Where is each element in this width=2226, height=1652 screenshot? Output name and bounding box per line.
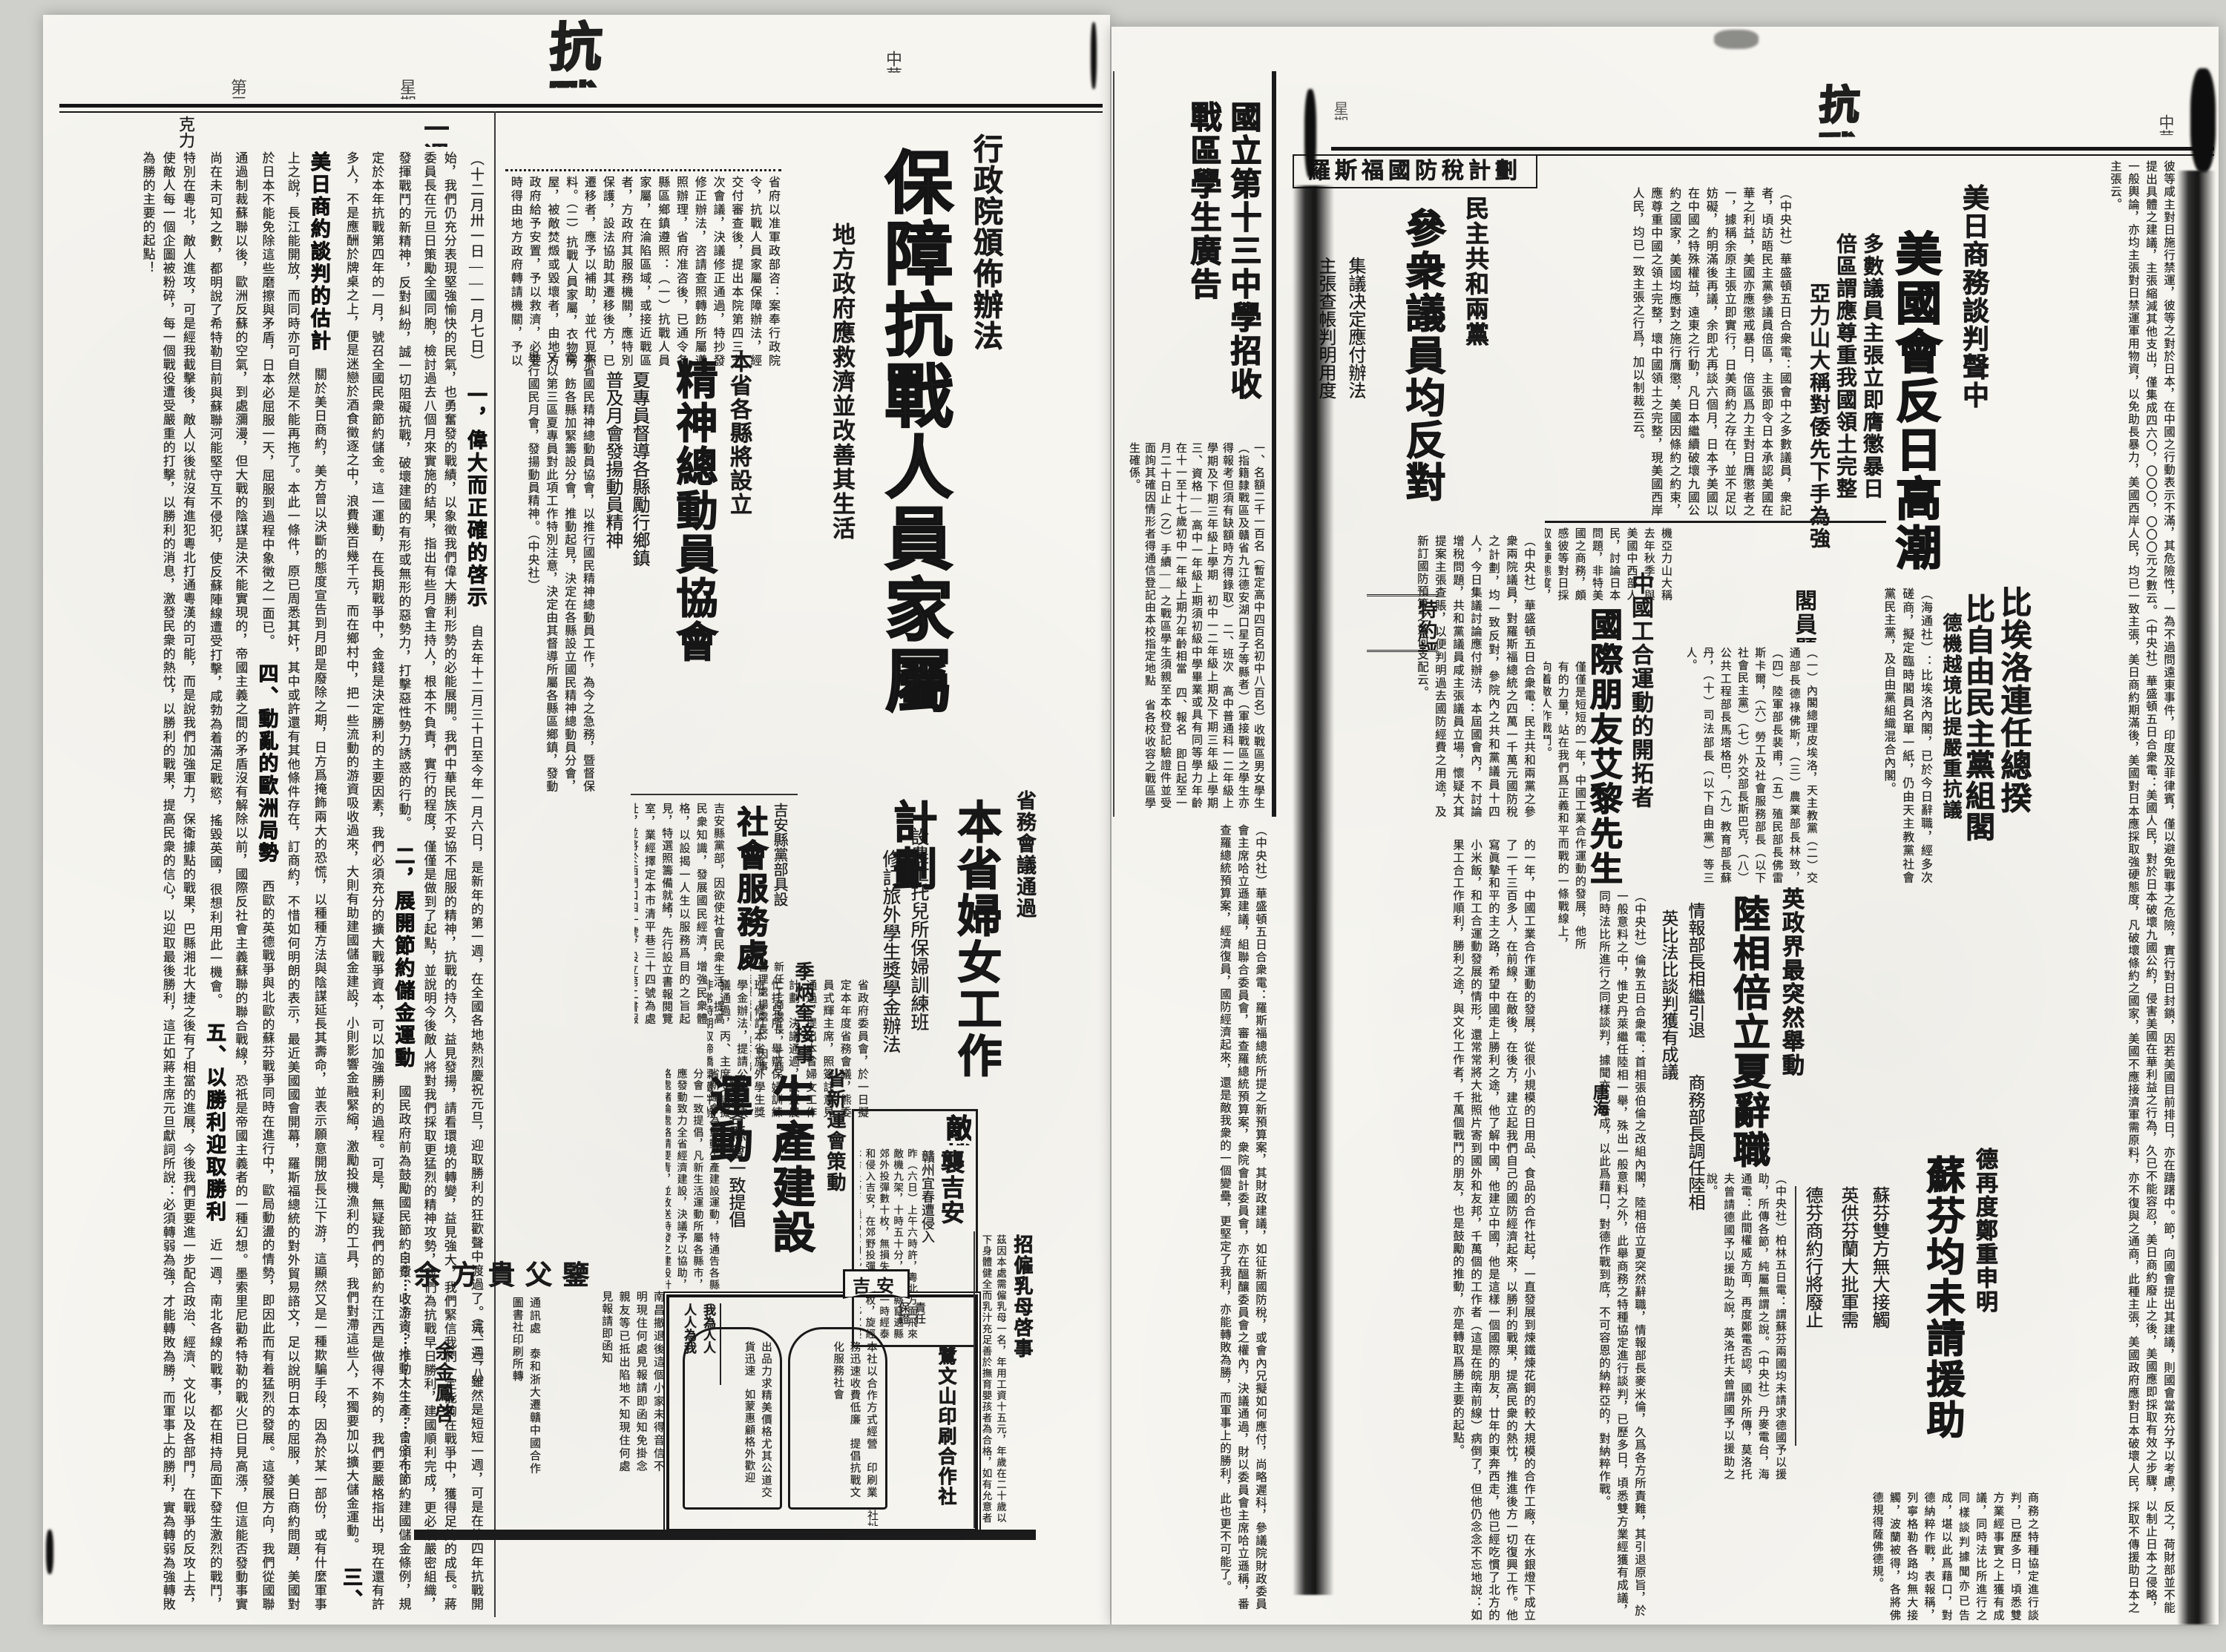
- fold-streak: [1293, 185, 1334, 1595]
- weekday-left: 星期日: [331, 79, 420, 99]
- production-drive-article: 省新運會策動 生產建設運動 通告各縣會一致提倡 省新運會為策動生產建設運動，特通…: [664, 1062, 852, 1296]
- review-sec1-head: 一，偉大而正確的啓示: [464, 385, 487, 609]
- fp-body: 省府以准軍政部咨：案奉行政院令，抗戰人員家屬保障辦法，經交付審查後，提出本院第四…: [505, 169, 781, 367]
- edition-label: 第三版: [154, 79, 251, 99]
- coop-label-guarantee: 保證: [896, 1302, 911, 1346]
- right-page: 國立第十三中學招收 戰區學生廣告 一、名額二千一百名（暫定高中四百名初中八百名）…: [1112, 27, 2219, 1625]
- fp-subhead: 地方政府應救濟並改善其生活: [825, 223, 858, 653]
- family-notice-code: （元、二一八）: [470, 1312, 485, 1460]
- essay-kicker: 中國工合運動的開拓者: [1623, 572, 1656, 817]
- family-notice-body: 南昌撤退後這個小家未得音信不明現住何處見報請即函知免掛念 親友等已抵出陷地不知現…: [548, 1291, 666, 1472]
- coop-banner: 吉安: [843, 1269, 910, 1299]
- weekly-review-title: 一週時事述評: [205, 116, 450, 147]
- prod-kicker: 省新運會策動: [821, 1068, 849, 1217]
- newspaper-scan: 抗戰日報 第三版 星期日 中華民國二十九年一月七日 一週時事述評 克力 （十二月…: [0, 0, 2226, 1652]
- spirit-body: 本省國民精神總動員協會，以推行國民精神總動員工作，為今之急務，暨督保電，飭各縣加…: [518, 352, 596, 793]
- family-notice-ad: 余方貴父鑒 南昌撤退後這個小家未得音信不明現住何處見報請即函知免掛念 親友等已抵…: [404, 1252, 672, 1482]
- essay-bodyA: 僅僅是短短的一年，中國工業合作運動的發展，他所有的力量，站在我們爲正義和平而戰的…: [1543, 661, 1588, 950]
- us-headline: 美國會反日高潮: [1880, 230, 1947, 582]
- belgium-roster: （一）內閣總理皮埃洛，天主教黨（二）交通部長德祿佛斯，（三）農業部長林致，（四）…: [1687, 647, 1819, 884]
- coop-arch-right: 本社以合作方式經營 印刷業務迅速收費低廉 提倡抗戰文化服務社會: [788, 1327, 887, 1510]
- tax-kicker: 民主共和兩黨: [1459, 196, 1493, 381]
- essay-tag: 特約評稿: [1367, 594, 1438, 652]
- ailey-essay: 特約評稿 中國工合運動的開拓者 國際朋友艾黎先生 僅僅是短短的一年，中國工業合作…: [1364, 565, 1683, 1629]
- ink-blot-2: [1304, 89, 1316, 178]
- weekday-right: 星期日: [1284, 101, 1350, 120]
- belgium-roster-title: 閣員題名: [1735, 589, 1816, 642]
- dateline-left: 中華民國二十九年一月七日: [607, 50, 904, 73]
- coop-address: 社址蘇統領八號: [738, 1510, 879, 1526]
- prod-subhead: 通告各縣會一致提倡: [723, 1074, 748, 1267]
- us-sub3: 亞力山大稱對倭先下手為強: [1803, 283, 1833, 602]
- belgium-body: （海通社）：比埃洛內閣，已於今日辭職，經多次磋商，擬定臨時閣員名單一紙，仍由天主…: [1824, 588, 1934, 884]
- school-ad: 國立第十三中學招收 戰區學生廣告 一、名額二千一百名（暫定高中四百名初中八百名）…: [1113, 71, 1276, 817]
- jibingkui-brief: 季炳奎接事 新任工商處長，工商管理處楊處長，因事繁無暇兼顧，經省務會議決定，派季…: [748, 958, 818, 1077]
- review-range: （十二月卅一日——一月七日）: [468, 151, 484, 369]
- right-strip-columns: 彼等咸主對日施行禁運，彼等之對於日本，在中國之行動表示不滿，其危險性，一為不過問…: [2045, 160, 2177, 1614]
- fp-headline: 保障抗戰人員家屬: [864, 147, 962, 748]
- coop-arch-left-text: 出品力求精美價格尤其公道交貨迅速 如蒙惠顧格外歡迎: [691, 1341, 774, 1498]
- wet-nurse-ad: 招僱乳母啓事 茲因本處需僱乳母一名，年用工資十五元，年歲在二十歲以下身體健全而乳…: [974, 1231, 1039, 1528]
- ink-blot-5: [1714, 30, 1759, 49]
- fp-kicker: 行政院頒佈辦法: [964, 134, 1007, 378]
- germany-headline: 蘇芬均未請援助: [1914, 1155, 1969, 1481]
- ink-blot-4: [1091, 22, 1097, 89]
- essay-byline: 唐海: [1588, 1084, 1612, 1143]
- raid-subhead: 贛州宜春遭侵入: [918, 1150, 937, 1298]
- family-notice-title: 余方貴父鑒: [414, 1254, 670, 1286]
- dateline-right: 中華民國二十九年一月七日: [1865, 114, 2176, 135]
- tax-sub1: 集議决定應付辦法: [1342, 257, 1368, 494]
- spirit-sub1: 夏專員督導各縣勵行鄉鎮: [626, 371, 652, 616]
- germany-kicker: 德再度鄭重申明: [1968, 1148, 2000, 1370]
- school-ad-title-1: 國立第十三中學招收: [1221, 101, 1266, 427]
- germany-finland-article: 德再度鄭重申明 蘇芬均未請援助 蘇芬雙方無大接觸 英供芬蘭大批軍需 德芬商約行將…: [1631, 1143, 2003, 1484]
- women-sub2: 修訂旅外學生獎學金辦法: [876, 849, 903, 1094]
- review-sec5-head: 五、以勝利迎取勝利: [203, 1022, 226, 1223]
- school-ad-body: 一、名額二千一百名（暫定高中四百名初中八百名）收戰區男女學生（指籍隸戰區及贛省九…: [1120, 442, 1266, 809]
- masthead-right: 抗戰日報: [1622, 83, 1862, 139]
- tax-headline: 參衆議員均反對: [1393, 208, 1451, 519]
- coop-name: 鷺文山印刷合作社: [932, 1346, 959, 1523]
- us-divider-rule: [1545, 521, 1886, 523]
- spirit-association-article: 本省各縣將設立 精神總動員協會 夏專員督導各縣勵行鄉鎮 普及月會發揚動員精神 本…: [516, 341, 798, 805]
- belgium-cabinet-article: 比埃洛連任總揆 比自由民主黨組閣 德機越境比提嚴重抗議 （海通社）：比埃洛內閣，…: [1683, 576, 2039, 895]
- tax-boxtitle: 羅斯福國防稅計劃: [1293, 154, 1537, 188]
- wet-nurse-title: 招僱乳母啓事: [1008, 1234, 1036, 1383]
- jibingkui-body: 新任工商處長，工商管理處楊處長，因事繁無暇兼顧，經省務會議決定，派季炳奎代理，茲…: [750, 961, 786, 1073]
- uk-sub1: 情報部長相繼引退: [1682, 902, 1707, 1065]
- germany-sub3: 德芬商約行將廢止: [1795, 1186, 1825, 1446]
- left-page: 抗戰日報 第三版 星期日 中華民國二十九年一月七日 一週時事述評 克力 （十二月…: [43, 15, 1110, 1625]
- women-sub1: 設農忙托兒所保婦訓練班: [904, 827, 931, 1072]
- spirit-headline: 精神總動員協會: [663, 358, 723, 677]
- coop-arch-left: 出品力求精美價格尤其公道交貨迅速 如蒙惠顧格外歡迎: [683, 1327, 782, 1510]
- right-edge-streak: [2177, 171, 2216, 1625]
- bottom-band-columns: 商務之特種協定進行談判，已歷多日，頃悉雙方業經事實之上獲有成議，同時法比所進行之…: [1675, 1492, 2040, 1622]
- jibingkui-headline: 季炳奎接事: [789, 961, 817, 1073]
- raid-headline: 敵機九架: [858, 1114, 971, 1145]
- raid-headline2: 襲吉安: [934, 1150, 968, 1246]
- spirit-kicker: 本省各縣將設立: [722, 350, 755, 573]
- spirit-sub2: 普及月會發揚動員精神: [600, 371, 626, 593]
- coop-arch-right-text: 本社以合作方式經營 印刷業務迅速收費低廉 提倡抗戰文化服務社會: [796, 1341, 879, 1498]
- germany-sub2: 英供芬蘭大批軍需: [1835, 1186, 1861, 1446]
- wet-nurse-body: 茲因本處需僱乳母一名，年用工資十五元，年歲在二十歲以下身體健全而乳汁充足善於撫育…: [976, 1234, 1008, 1524]
- ink-blot-3: [46, 1530, 53, 1574]
- us-sub2: 倍區謂應尊重我國領土完整: [1830, 233, 1859, 552]
- us-congress-article: 美日商務談判聲中 美國會反日高潮 多數議員主張立即膺懲暴日 倍區謂應尊重我國領土…: [1542, 153, 2024, 605]
- us-body: （中央社）華盛頓五日合衆電：國會中之多數議員，衆記者，頃訪晤民主黨參議員倍區，主…: [1543, 187, 1793, 517]
- coop-label-responsibility: 責任: [912, 1302, 927, 1346]
- ads-bottom-rule: [414, 1530, 1036, 1540]
- tax-article-continuation: （中央社）華盛頓五日合衆電：羅斯福總統所提之新預算案，其財政建議，如征新國防稅，…: [1116, 824, 1269, 1610]
- review-sec4-head: 四、動亂的歐洲局勢: [256, 663, 278, 864]
- germany-sub1: 蘇芬雙方無大接觸: [1866, 1186, 1892, 1446]
- ink-blot-1: [2190, 68, 2216, 172]
- us-kicker: 美日商務談判聲中: [1954, 184, 1993, 421]
- us-sub1: 多數議員主張立即膺懲暴日: [1856, 233, 1886, 552]
- essay-bodyB: 的一年，中國工業合作運動的發展，從很小規模的日用品、食品的合作社起，一直發展到煉…: [1367, 839, 1537, 1622]
- family-notice-signer: 余金鳳啓: [430, 1341, 457, 1460]
- uk-kicker: 英政界最突然舉動: [1774, 887, 1807, 1110]
- belgium-subhead: 德機越境比提嚴重抗議: [1937, 613, 1965, 909]
- prod-body: 省新運會為策動生產建設運動，特通告各縣分會一致提倡，凡新生活運動所屬各縣市，應發…: [666, 1068, 721, 1291]
- women-kicker: 省務會議通過: [1011, 790, 1040, 968]
- school-ad-title-2: 戰區學生廣告: [1181, 101, 1226, 323]
- family-notice-contact: 通訊處 泰和浙大遷贛中國合作圖書社印刷所轉: [490, 1297, 542, 1475]
- print-coop-ad: 吉安 人人為我 我為人人 責任 保證 本社以合作方式經營 印刷業務迅速收費低廉 …: [666, 1294, 978, 1532]
- review-sec2-head: 二，展開節約儲金運動: [392, 846, 414, 1070]
